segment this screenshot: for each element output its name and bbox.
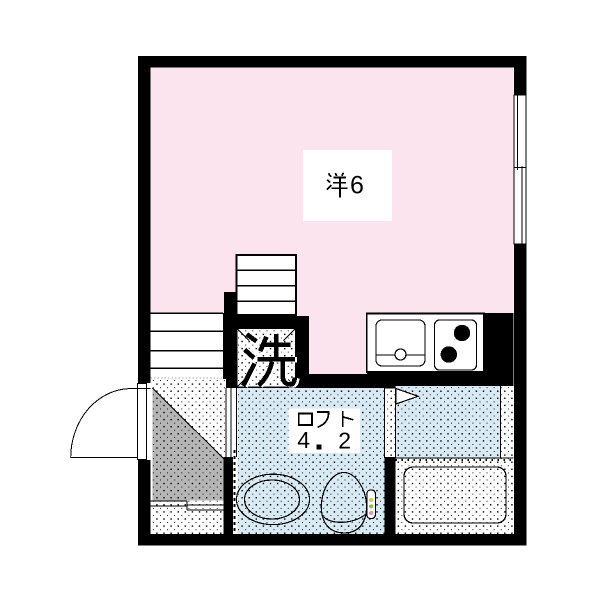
svg-text:4: 4 <box>297 427 310 453</box>
svg-text:2: 2 <box>338 427 351 453</box>
svg-text:6: 6 <box>350 171 364 199</box>
